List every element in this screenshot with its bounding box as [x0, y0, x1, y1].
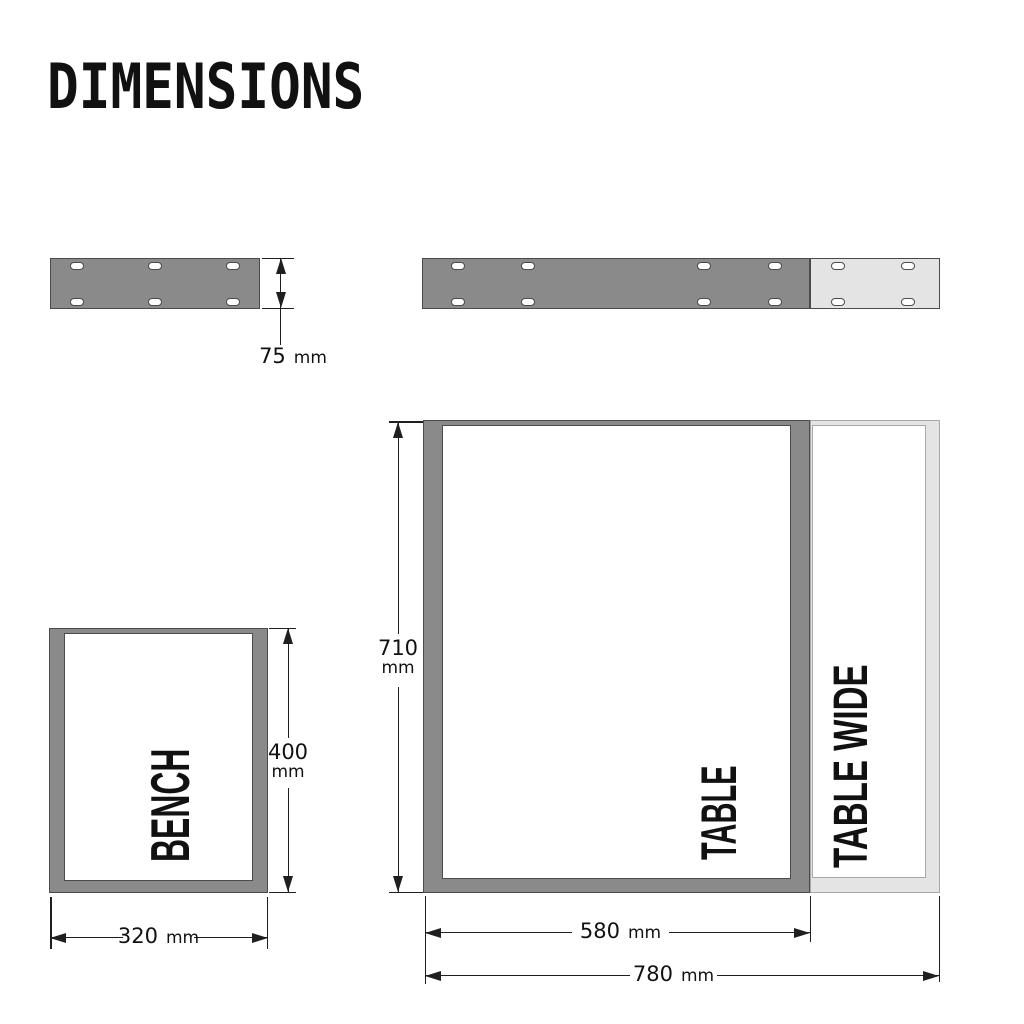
screw-hole — [226, 262, 240, 270]
screw-hole — [831, 262, 845, 270]
dimension-unit: mm — [681, 966, 714, 987]
dimension-value: 580 — [580, 921, 620, 942]
arrowhead-right-icon — [923, 971, 939, 981]
screw-hole — [451, 298, 465, 306]
table-wide-label: TABLE WIDE — [827, 664, 877, 868]
screw-hole — [148, 298, 162, 306]
dimension-unit: mm — [166, 928, 199, 949]
arrowhead-up-icon — [283, 628, 293, 644]
dimension-label: 320 mm — [123, 926, 194, 949]
screw-hole — [521, 298, 535, 306]
dimension-value: 710 — [374, 637, 422, 659]
arrowhead-right-icon — [794, 928, 810, 938]
arrowhead-left-icon — [425, 971, 441, 981]
table-wide-plate-extension-top-view — [810, 258, 940, 309]
dimension-unit: mm — [262, 763, 314, 782]
screw-hole — [901, 262, 915, 270]
dimension-unit: mm — [628, 923, 661, 944]
dimension-value: 75 — [259, 346, 286, 367]
dimension-value: 780 — [633, 964, 673, 985]
dimension-label: 580 mm — [572, 921, 669, 944]
screw-hole — [768, 262, 782, 270]
screw-hole — [521, 262, 535, 270]
arrowhead-up-icon — [276, 258, 286, 274]
dimension-value: 320 — [118, 926, 158, 947]
dimension-label: 400 mm — [262, 741, 314, 782]
table-label: TABLE — [693, 765, 745, 860]
screw-hole — [697, 262, 711, 270]
arrowhead-down-icon — [283, 876, 293, 892]
dimension-line — [425, 932, 572, 934]
dimension-unit: mm — [294, 348, 327, 369]
screw-hole — [70, 298, 84, 306]
table-plate-top-view — [422, 258, 810, 309]
screw-hole — [70, 262, 84, 270]
bench-plate-top-view — [50, 258, 260, 309]
dimension-line — [288, 628, 290, 738]
dimension-line — [669, 932, 810, 934]
dimension-value: 400 — [262, 741, 314, 763]
dimension-line — [717, 975, 939, 977]
dimension-label: 710 mm — [374, 637, 422, 678]
screw-hole — [768, 298, 782, 306]
dimension-label: 75 mm — [255, 346, 331, 369]
arrowhead-left-icon — [425, 928, 441, 938]
dimension-line — [398, 687, 400, 892]
arrowhead-up-icon — [393, 422, 403, 438]
screw-hole — [831, 298, 845, 306]
screw-hole — [697, 298, 711, 306]
dimension-label: 780 mm — [630, 964, 717, 987]
extension-line — [939, 896, 941, 982]
dimension-line — [425, 975, 630, 977]
dimensions-diagram: DIMENSIONS 75 mm — [0, 0, 1024, 1024]
page-title: DIMENSIONS — [47, 56, 364, 118]
arrowhead-left-icon — [50, 933, 66, 943]
screw-hole — [148, 262, 162, 270]
screw-hole — [901, 298, 915, 306]
arrowhead-down-icon — [276, 292, 286, 308]
arrowhead-down-icon — [393, 876, 403, 892]
table-leg-frame — [423, 420, 810, 893]
screw-hole — [226, 298, 240, 306]
arrowhead-right-icon — [252, 933, 268, 943]
bench-label: BENCH — [142, 749, 198, 862]
dimension-unit: mm — [374, 659, 422, 678]
screw-hole — [451, 262, 465, 270]
dimension-line — [398, 422, 400, 634]
